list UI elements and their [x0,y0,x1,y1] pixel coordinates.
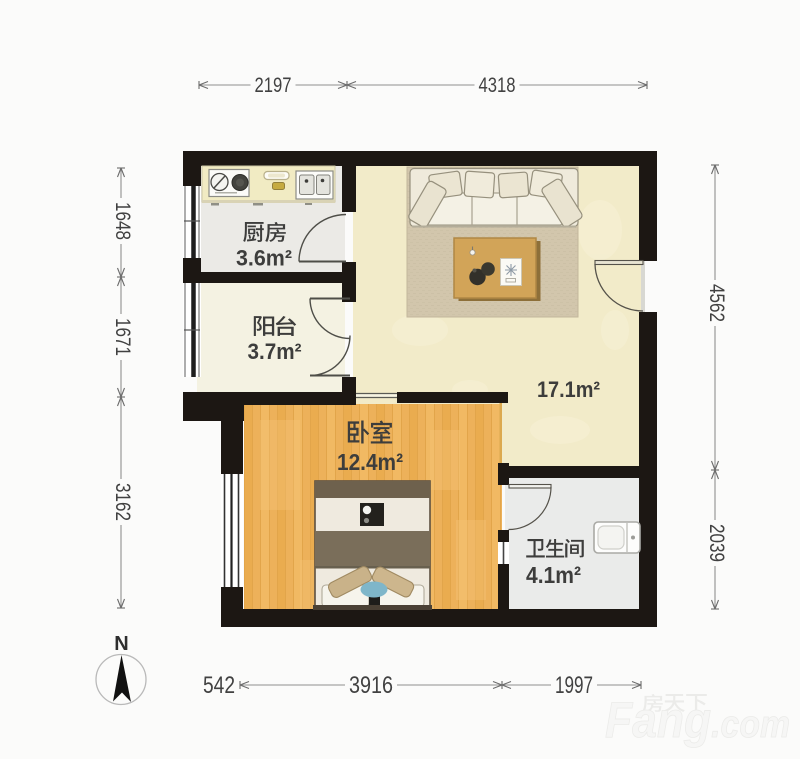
svg-text:4318: 4318 [479,74,516,97]
svg-text:3.7m²: 3.7m² [248,339,302,364]
svg-text:3916: 3916 [349,672,393,699]
svg-text:12.4m²: 12.4m² [337,449,403,475]
svg-text:1671: 1671 [111,318,134,356]
svg-text:2197: 2197 [255,74,292,97]
svg-text:1648: 1648 [111,202,134,240]
svg-text:542: 542 [203,672,235,699]
svg-text:3.6m²: 3.6m² [236,246,292,271]
svg-text:17.1m²: 17.1m² [537,377,600,402]
svg-text:N: N [114,633,128,655]
svg-text:2039: 2039 [705,524,728,562]
svg-text:3162: 3162 [111,483,134,521]
svg-text:1997: 1997 [555,672,593,699]
svg-text:4.1m²: 4.1m² [526,562,581,588]
svg-text:4562: 4562 [705,284,728,322]
